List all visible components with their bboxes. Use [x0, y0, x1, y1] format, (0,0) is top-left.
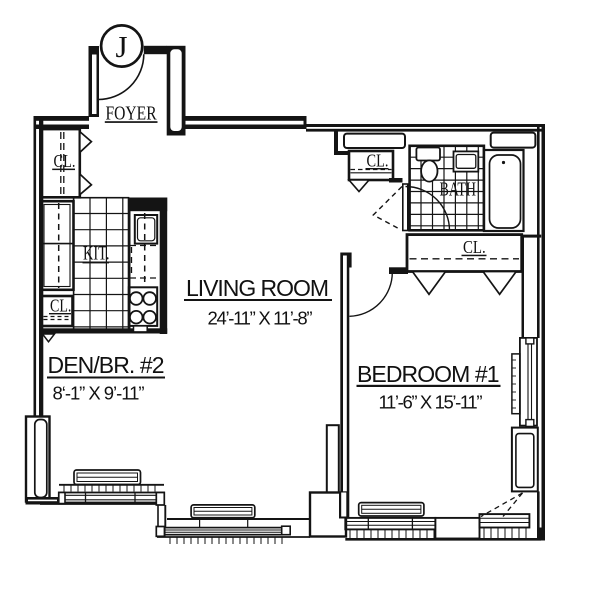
svg-text:24’-11” X 11’-8”: 24’-11” X 11’-8”	[208, 307, 313, 328]
svg-text:CL.: CL.	[463, 238, 486, 257]
svg-text:CL.: CL.	[54, 153, 76, 172]
svg-text:BATH: BATH	[440, 178, 477, 200]
svg-text:J: J	[116, 29, 128, 64]
svg-text:BEDROOM #1: BEDROOM #1	[357, 361, 500, 387]
svg-text:FOYER: FOYER	[106, 102, 157, 124]
svg-text:11’-6” X 15’-11”: 11’-6” X 15’-11”	[379, 391, 483, 412]
svg-text:LIVING ROOM: LIVING ROOM	[186, 275, 329, 301]
svg-text:8‘-1” X 9’-11”: 8‘-1” X 9’-11”	[53, 383, 145, 404]
svg-text:KIT.: KIT.	[83, 241, 109, 264]
svg-text:DEN/BR. #2: DEN/BR. #2	[48, 352, 165, 378]
